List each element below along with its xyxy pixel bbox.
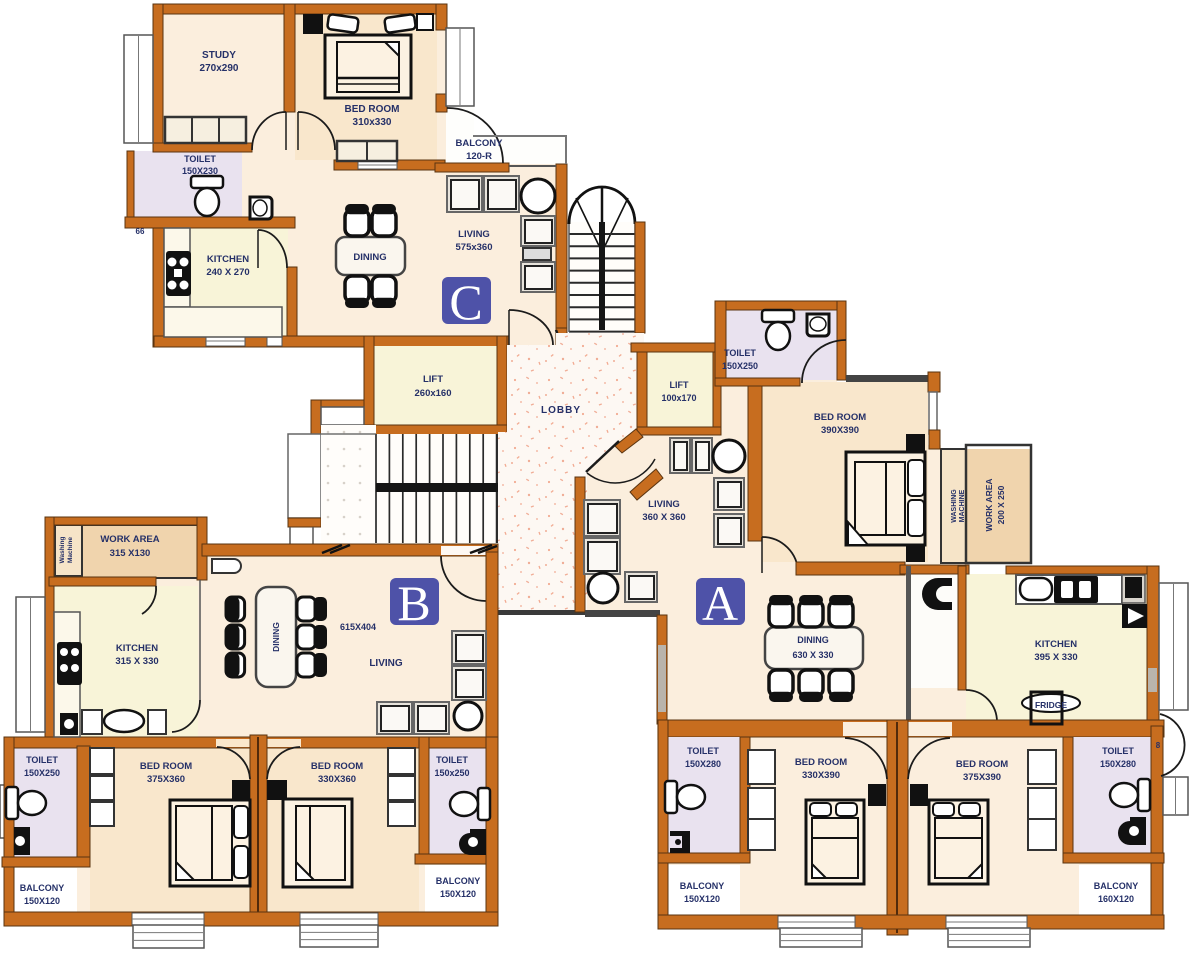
svg-text:160X120: 160X120 bbox=[1098, 894, 1134, 904]
svg-text:TOILET: TOILET bbox=[184, 154, 216, 164]
svg-text:310x330: 310x330 bbox=[353, 117, 392, 128]
svg-text:BALCONY: BALCONY bbox=[1094, 881, 1139, 891]
svg-text:KITCHEN: KITCHEN bbox=[116, 643, 158, 654]
svg-text:375X390: 375X390 bbox=[963, 772, 1001, 783]
svg-text:WASHING: WASHING bbox=[951, 489, 958, 523]
svg-text:Machine: Machine bbox=[67, 537, 74, 563]
svg-text:BALCONY: BALCONY bbox=[436, 876, 481, 886]
svg-text:MACHINE: MACHINE bbox=[959, 489, 966, 522]
svg-text:360 X 360: 360 X 360 bbox=[642, 512, 685, 523]
svg-text:DINING: DINING bbox=[353, 252, 386, 263]
svg-text:KITCHEN: KITCHEN bbox=[207, 254, 249, 265]
svg-text:DINING: DINING bbox=[271, 622, 281, 652]
svg-text:100x170: 100x170 bbox=[661, 393, 696, 403]
svg-text:615X404: 615X404 bbox=[340, 622, 376, 632]
svg-text:TOILET: TOILET bbox=[724, 348, 756, 358]
svg-text:66: 66 bbox=[136, 227, 145, 236]
svg-text:FRIDGE: FRIDGE bbox=[1035, 700, 1067, 710]
svg-text:200 X 250: 200 X 250 bbox=[996, 485, 1006, 524]
svg-text:BED ROOM: BED ROOM bbox=[140, 761, 192, 772]
svg-text:8: 8 bbox=[1156, 741, 1161, 750]
svg-text:TOILET: TOILET bbox=[1102, 746, 1134, 756]
svg-text:270x290: 270x290 bbox=[200, 63, 239, 74]
svg-text:315 X 330: 315 X 330 bbox=[115, 656, 158, 667]
svg-text:KITCHEN: KITCHEN bbox=[1035, 639, 1077, 650]
svg-text:BED ROOM: BED ROOM bbox=[345, 104, 400, 115]
svg-text:330X390: 330X390 bbox=[802, 770, 840, 781]
svg-text:150X280: 150X280 bbox=[1100, 759, 1136, 769]
svg-text:BED ROOM: BED ROOM bbox=[814, 412, 866, 423]
svg-text:LIVING: LIVING bbox=[369, 658, 403, 669]
svg-text:BED ROOM: BED ROOM bbox=[956, 759, 1008, 770]
svg-text:395 X 330: 395 X 330 bbox=[1034, 652, 1077, 663]
svg-text:LOBBY: LOBBY bbox=[541, 405, 581, 416]
svg-text:575x360: 575x360 bbox=[456, 242, 493, 253]
svg-text:TOILET: TOILET bbox=[687, 746, 719, 756]
svg-text:150X120: 150X120 bbox=[684, 894, 720, 904]
svg-text:120-R: 120-R bbox=[466, 151, 492, 162]
svg-text:BALCONY: BALCONY bbox=[20, 883, 65, 893]
svg-text:Washing: Washing bbox=[59, 537, 66, 564]
svg-text:150X120: 150X120 bbox=[24, 896, 60, 906]
svg-text:315 X130: 315 X130 bbox=[110, 548, 151, 559]
svg-text:150X250: 150X250 bbox=[722, 361, 758, 371]
svg-text:375X360: 375X360 bbox=[147, 774, 185, 785]
svg-text:WORK AREA: WORK AREA bbox=[984, 478, 994, 531]
svg-text:240 X 270: 240 X 270 bbox=[206, 267, 249, 278]
svg-text:150X280: 150X280 bbox=[685, 759, 721, 769]
svg-text:150x250: 150x250 bbox=[434, 768, 469, 778]
svg-text:LIFT: LIFT bbox=[423, 374, 443, 385]
svg-text:150X120: 150X120 bbox=[440, 889, 476, 899]
svg-text:330X360: 330X360 bbox=[318, 774, 356, 785]
svg-text:TOILET: TOILET bbox=[436, 755, 468, 765]
svg-text:TOILET: TOILET bbox=[26, 755, 58, 765]
svg-text:BED ROOM: BED ROOM bbox=[795, 757, 847, 768]
svg-text:WORK AREA: WORK AREA bbox=[100, 534, 159, 545]
svg-text:LIFT: LIFT bbox=[670, 380, 689, 390]
svg-text:150X230: 150X230 bbox=[182, 166, 218, 176]
svg-text:150X250: 150X250 bbox=[24, 768, 60, 778]
svg-text:LIVING: LIVING bbox=[648, 499, 680, 510]
svg-text:BALCONY: BALCONY bbox=[456, 138, 504, 149]
svg-text:A: A bbox=[702, 575, 738, 631]
svg-text:390X390: 390X390 bbox=[821, 425, 859, 436]
svg-text:C: C bbox=[449, 274, 482, 330]
svg-text:630 X 330: 630 X 330 bbox=[792, 650, 833, 660]
svg-text:BALCONY: BALCONY bbox=[680, 881, 725, 891]
svg-text:260x160: 260x160 bbox=[415, 388, 452, 399]
svg-text:BED ROOM: BED ROOM bbox=[311, 761, 363, 772]
svg-text:B: B bbox=[397, 575, 430, 631]
svg-text:LIVING: LIVING bbox=[458, 229, 490, 240]
svg-text:DINING: DINING bbox=[797, 635, 829, 645]
svg-text:STUDY: STUDY bbox=[202, 50, 236, 61]
